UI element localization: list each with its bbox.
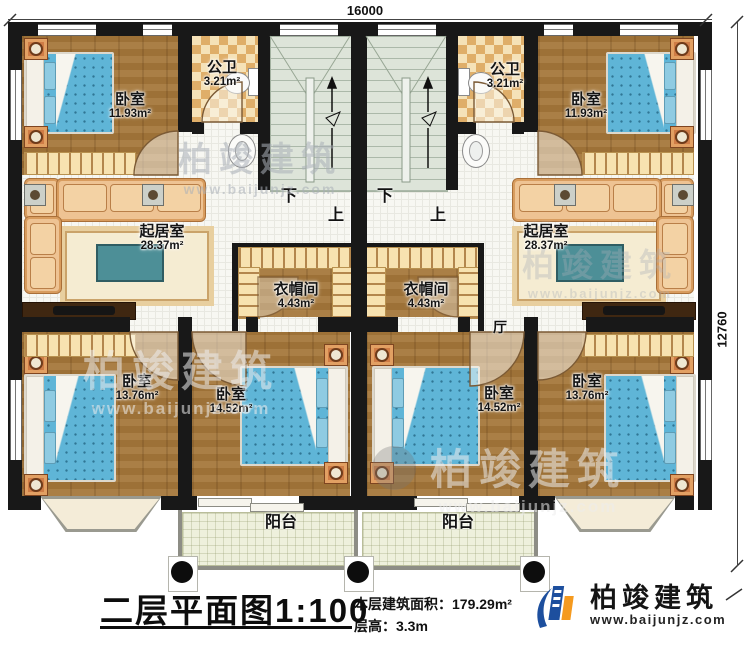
room-label-cloak-left: 衣帽间4.43m² xyxy=(273,281,318,311)
sink xyxy=(228,134,256,168)
wall-interior xyxy=(240,122,258,134)
bed xyxy=(240,366,348,466)
window xyxy=(143,24,172,36)
cloak-right-closet-side xyxy=(458,267,480,319)
nightstand xyxy=(670,474,694,496)
wall-exterior-bottom xyxy=(519,496,555,510)
wall-interior xyxy=(458,317,470,332)
wall-interior xyxy=(524,36,538,132)
sofa xyxy=(656,216,694,294)
floor-area-info: 本层建筑面积：179.29m² xyxy=(354,594,512,614)
nightstand xyxy=(370,344,394,366)
sliding-door xyxy=(466,503,520,512)
room-label-bath-left: 公卫3.21m² xyxy=(204,59,240,89)
stair-label-up-left: 上 xyxy=(328,201,344,225)
room-label-living-right: 起居室28.37m² xyxy=(523,223,568,253)
wall-exterior-bottom xyxy=(161,496,197,510)
bed xyxy=(24,374,116,482)
sliding-door xyxy=(198,498,252,507)
nightstand xyxy=(670,38,694,60)
company-url: www.baijunjz.com xyxy=(590,612,726,627)
side-table xyxy=(142,184,164,206)
room-label-living-left: 起居室28.37m² xyxy=(139,223,184,253)
window xyxy=(10,70,22,140)
wall-interior xyxy=(192,122,204,134)
wall-interior xyxy=(458,122,476,134)
wall-interior xyxy=(512,122,524,134)
stairwell-left xyxy=(270,36,352,192)
wall-cloak xyxy=(232,247,238,331)
stairwell-right xyxy=(366,36,448,192)
watermark-logo-ghost xyxy=(372,446,416,490)
wall-interior xyxy=(524,332,538,496)
plan-title: 二层平面图1:100 xyxy=(100,584,369,632)
room-label-balcony-left: 阳台 xyxy=(265,508,297,532)
room-label-hall: 厅 xyxy=(493,317,507,337)
room-label-bedroom-tl: 卧室11.93m² xyxy=(109,91,151,121)
sofa xyxy=(56,178,206,222)
column xyxy=(347,561,369,583)
cloak-left-closet-side xyxy=(238,267,260,319)
wall-interior xyxy=(586,317,694,332)
bay-window-right xyxy=(554,496,676,532)
room-label-bedroom-bmr: 卧室14.52m² xyxy=(478,385,521,415)
title-underline xyxy=(100,626,352,629)
wall-stair-left xyxy=(258,36,270,190)
floor-plan-canvas: 16000 12760 卧室11.93m² 卧室11.93m² 公卫3.21m²… xyxy=(0,0,750,648)
wall-interior xyxy=(246,317,258,332)
dimension-line-right xyxy=(737,22,738,566)
nightstand xyxy=(324,462,348,484)
window xyxy=(544,24,573,36)
window xyxy=(700,70,712,140)
company-logo: 柏竣建筑 www.baijunjz.com xyxy=(534,580,726,632)
room-label-bedroom-tr: 卧室11.93m² xyxy=(565,91,607,121)
window xyxy=(620,24,678,36)
wall-interior xyxy=(22,317,130,332)
wall-stair-right xyxy=(446,36,458,190)
wall-party-center xyxy=(351,22,367,510)
nightstand xyxy=(24,474,48,496)
nightstand xyxy=(24,126,48,148)
company-logo-icon xyxy=(534,580,582,632)
side-table xyxy=(24,184,46,206)
sofa xyxy=(512,178,662,222)
room-label-cloak-right: 衣帽间4.43m² xyxy=(403,281,448,311)
bed xyxy=(24,52,114,134)
window xyxy=(378,24,436,36)
wardrobe xyxy=(24,334,136,357)
wardrobe xyxy=(582,334,694,357)
wardrobe xyxy=(582,152,694,175)
wall-cloak xyxy=(232,243,356,247)
nightstand xyxy=(324,344,348,366)
sink xyxy=(462,134,490,168)
window xyxy=(280,24,338,36)
wall-interior xyxy=(318,317,398,332)
dimension-right: 12760 xyxy=(715,295,730,365)
room-label-bedroom-bml: 卧室14.52m² xyxy=(210,386,253,416)
window xyxy=(38,24,96,36)
side-table xyxy=(554,184,576,206)
wall-cloak xyxy=(478,247,484,331)
stair-label-down-right: 下 xyxy=(377,182,393,206)
wall-exterior-bottom xyxy=(299,496,417,510)
cloak-right-closet-side xyxy=(364,267,386,319)
sliding-door xyxy=(414,498,468,507)
wall-exterior-bottom xyxy=(22,496,41,510)
wardrobe xyxy=(24,152,136,175)
wall-interior xyxy=(178,332,192,496)
wall-interior xyxy=(178,36,192,132)
wall-cloak xyxy=(360,243,484,247)
nightstand xyxy=(24,38,48,60)
bed xyxy=(606,52,696,134)
cloak-right-closet-top xyxy=(364,247,480,269)
cloak-left-closet-top xyxy=(238,247,354,269)
wall-exterior-bottom xyxy=(675,496,694,510)
dimension-top: 16000 xyxy=(320,3,410,18)
window xyxy=(700,380,712,460)
floor-height-info: 层高：3.3m xyxy=(354,616,428,636)
company-name: 柏竣建筑 xyxy=(590,585,726,612)
dimension-line-top xyxy=(8,19,712,20)
room-label-bath-right: 公卫3.21m² xyxy=(487,61,523,91)
nightstand xyxy=(670,126,694,148)
window xyxy=(10,380,22,460)
room-label-balcony-right: 阳台 xyxy=(442,508,474,532)
wall-interior xyxy=(178,317,192,332)
stair-label-down-left: 下 xyxy=(281,182,297,206)
room-label-bedroom-br: 卧室13.76m² xyxy=(566,373,609,403)
bay-window-left xyxy=(40,496,162,532)
side-table xyxy=(672,184,694,206)
room-label-bedroom-bl: 卧室13.76m² xyxy=(116,373,159,403)
sofa xyxy=(24,216,62,294)
plan-title-text: 二层平面图 xyxy=(100,584,275,632)
stair-label-up-right: 上 xyxy=(430,201,446,225)
bed xyxy=(604,374,696,482)
column xyxy=(171,561,193,583)
wall-interior xyxy=(524,317,538,332)
